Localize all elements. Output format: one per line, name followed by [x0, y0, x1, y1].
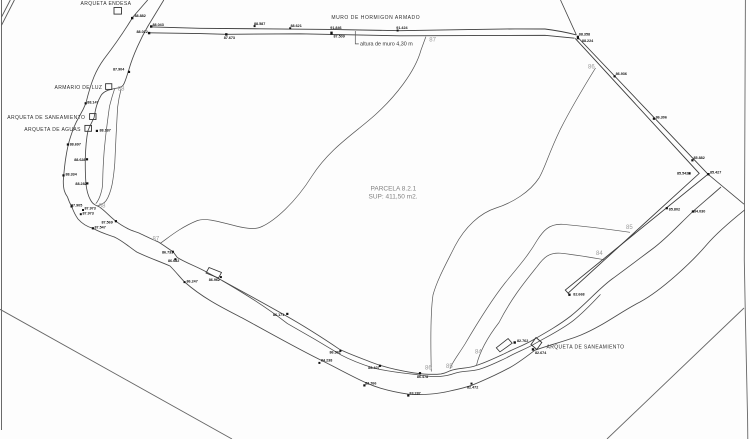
svg-text:88.334: 88.334	[66, 173, 78, 177]
svg-text:MURO DE HORMIGON ARMADO: MURO DE HORMIGON ARMADO	[331, 15, 420, 21]
svg-text:86.478: 86.478	[417, 375, 428, 379]
svg-text:88.621: 88.621	[291, 24, 302, 28]
svg-text:87.905: 87.905	[71, 204, 82, 208]
svg-text:86.407: 86.407	[368, 366, 379, 370]
svg-text:87.973: 87.973	[85, 206, 96, 210]
svg-text:87.904: 87.904	[113, 68, 125, 72]
svg-text:91.424: 91.424	[396, 26, 408, 30]
svg-text:88.147: 88.147	[87, 100, 98, 104]
svg-text:88.224: 88.224	[582, 39, 594, 43]
svg-text:86.733: 86.733	[162, 251, 173, 255]
svg-text:88.358: 88.358	[579, 33, 590, 37]
svg-text:86.962: 86.962	[209, 278, 220, 282]
svg-text:86.682: 86.682	[168, 259, 179, 263]
svg-text:84: 84	[475, 349, 482, 355]
svg-text:88: 88	[99, 203, 106, 209]
svg-text:87: 87	[429, 37, 436, 43]
svg-text:84.030: 84.030	[694, 209, 705, 213]
svg-text:86.391: 86.391	[330, 351, 341, 355]
svg-text:88.628: 88.628	[74, 158, 85, 162]
svg-text:86.936: 86.936	[616, 72, 627, 76]
svg-text:ARMARIO DE LUZ: ARMARIO DE LUZ	[55, 85, 103, 91]
svg-text:85: 85	[626, 225, 633, 231]
svg-text:86.306: 86.306	[656, 116, 667, 120]
svg-text:88: 88	[118, 87, 125, 93]
svg-text:87.569: 87.569	[102, 221, 113, 225]
svg-text:82.472: 82.472	[467, 385, 478, 389]
svg-text:88.187: 88.187	[100, 128, 111, 132]
svg-text:86: 86	[588, 64, 595, 70]
svg-text:82.674: 82.674	[535, 351, 547, 355]
svg-text:83.766: 83.766	[365, 381, 376, 385]
svg-text:82.762: 82.762	[517, 339, 528, 343]
svg-text:87.509: 87.509	[334, 34, 345, 38]
svg-text:86.171: 86.171	[273, 313, 284, 317]
svg-text:ARQUETA DE AGUAS: ARQUETA DE AGUAS	[24, 127, 81, 133]
svg-text:PARCELA 8.2.1: PARCELA 8.2.1	[371, 186, 417, 193]
svg-text:altura de muro 4,30 m: altura de muro 4,30 m	[360, 41, 413, 47]
svg-text:85.802: 85.802	[669, 208, 680, 212]
svg-text:87.973: 87.973	[83, 212, 94, 216]
svg-text:87: 87	[153, 236, 160, 242]
svg-text:88.012: 88.012	[137, 30, 148, 34]
svg-text:85.427: 85.427	[710, 171, 721, 175]
svg-text:85: 85	[446, 364, 453, 370]
svg-text:88.043: 88.043	[153, 23, 164, 27]
svg-text:86: 86	[425, 365, 432, 371]
svg-text:88.587: 88.587	[254, 22, 265, 26]
svg-text:82.668: 82.668	[573, 292, 584, 296]
svg-text:91.846: 91.846	[330, 26, 341, 30]
svg-text:86.247: 86.247	[187, 279, 198, 283]
svg-text:ARQUETA DE SANEAMIENTO: ARQUETA DE SANEAMIENTO	[7, 115, 85, 121]
svg-text:ARQUETA DE SANEAMIENTO: ARQUETA DE SANEAMIENTO	[547, 345, 625, 351]
svg-text:SUP: 411,50 m2.: SUP: 411,50 m2.	[369, 194, 418, 201]
svg-text:87.547: 87.547	[95, 226, 106, 230]
svg-text:84: 84	[596, 251, 603, 257]
svg-text:87.673: 87.673	[224, 36, 235, 40]
svg-text:88.697: 88.697	[70, 143, 81, 147]
svg-text:ARQUETA ENDESA: ARQUETA ENDESA	[81, 1, 132, 7]
svg-text:84.238: 84.238	[321, 358, 332, 362]
svg-text:88.882: 88.882	[135, 14, 146, 18]
svg-text:88.282: 88.282	[75, 182, 86, 186]
svg-text:85.882: 85.882	[694, 156, 705, 160]
svg-text:83.287: 83.287	[409, 392, 420, 396]
svg-text:85.542: 85.542	[677, 172, 688, 176]
